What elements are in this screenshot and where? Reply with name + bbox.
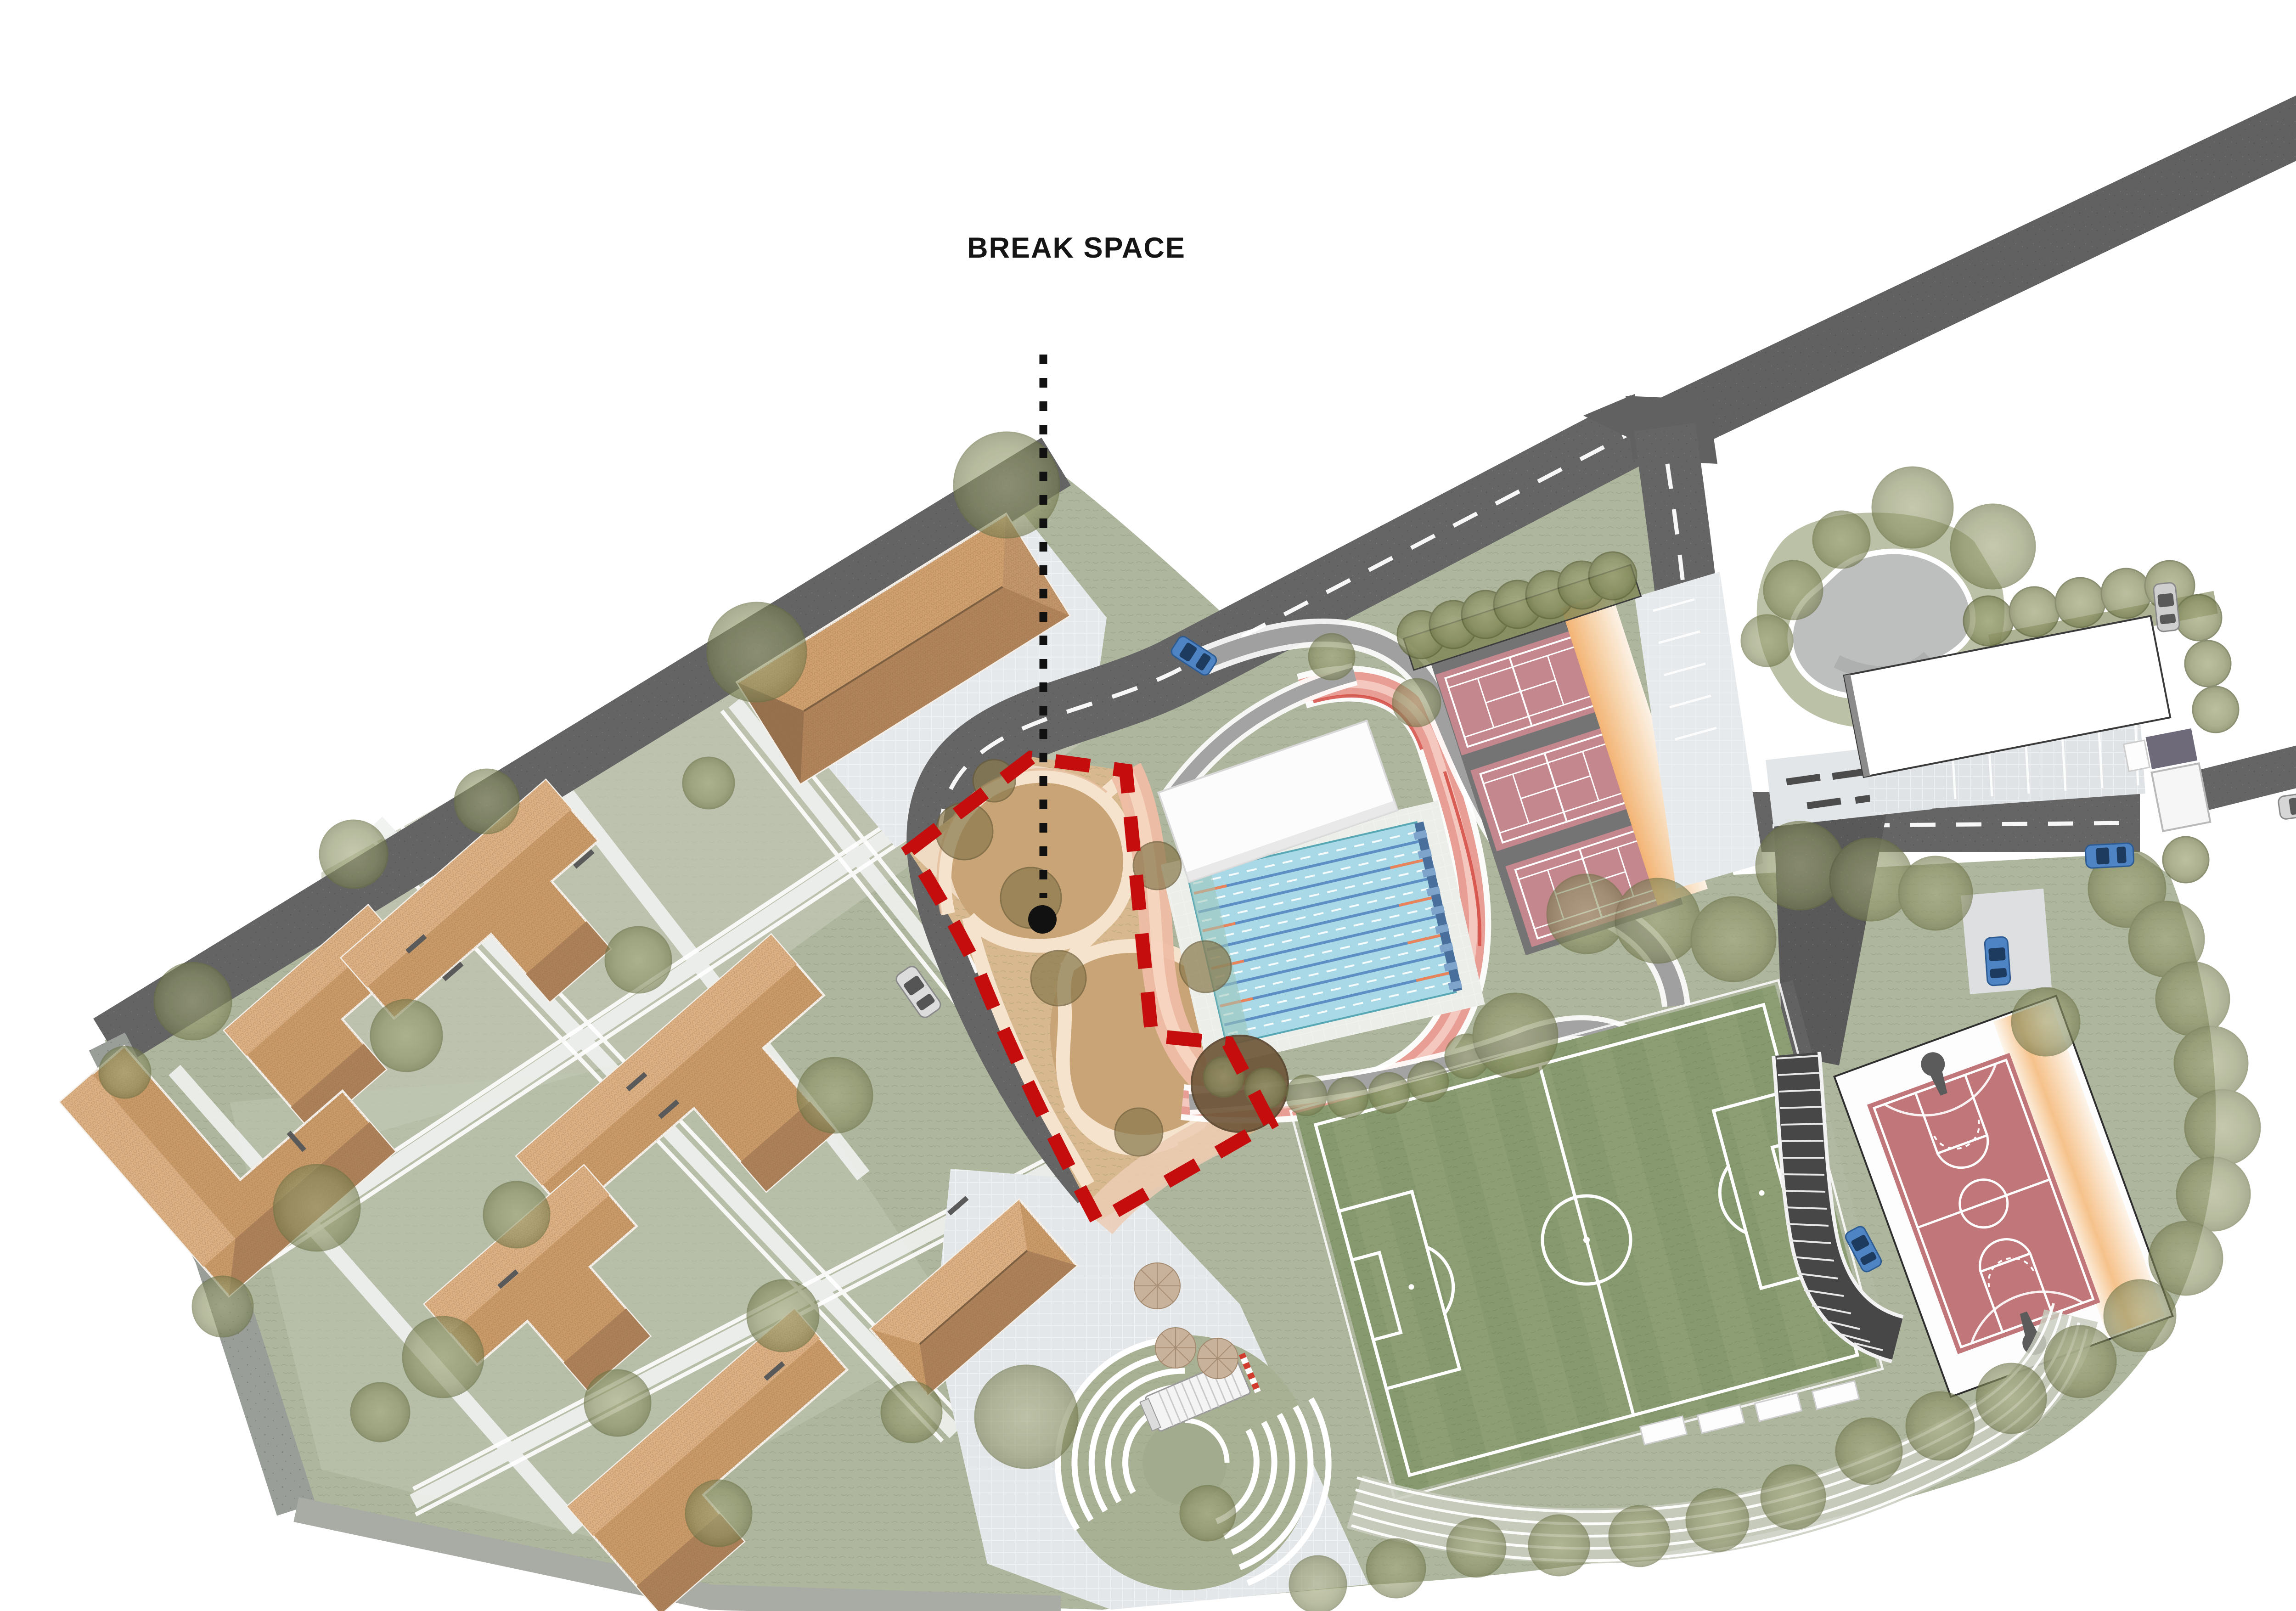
svg-text:BREAK SPACE: BREAK SPACE [967, 232, 1186, 264]
